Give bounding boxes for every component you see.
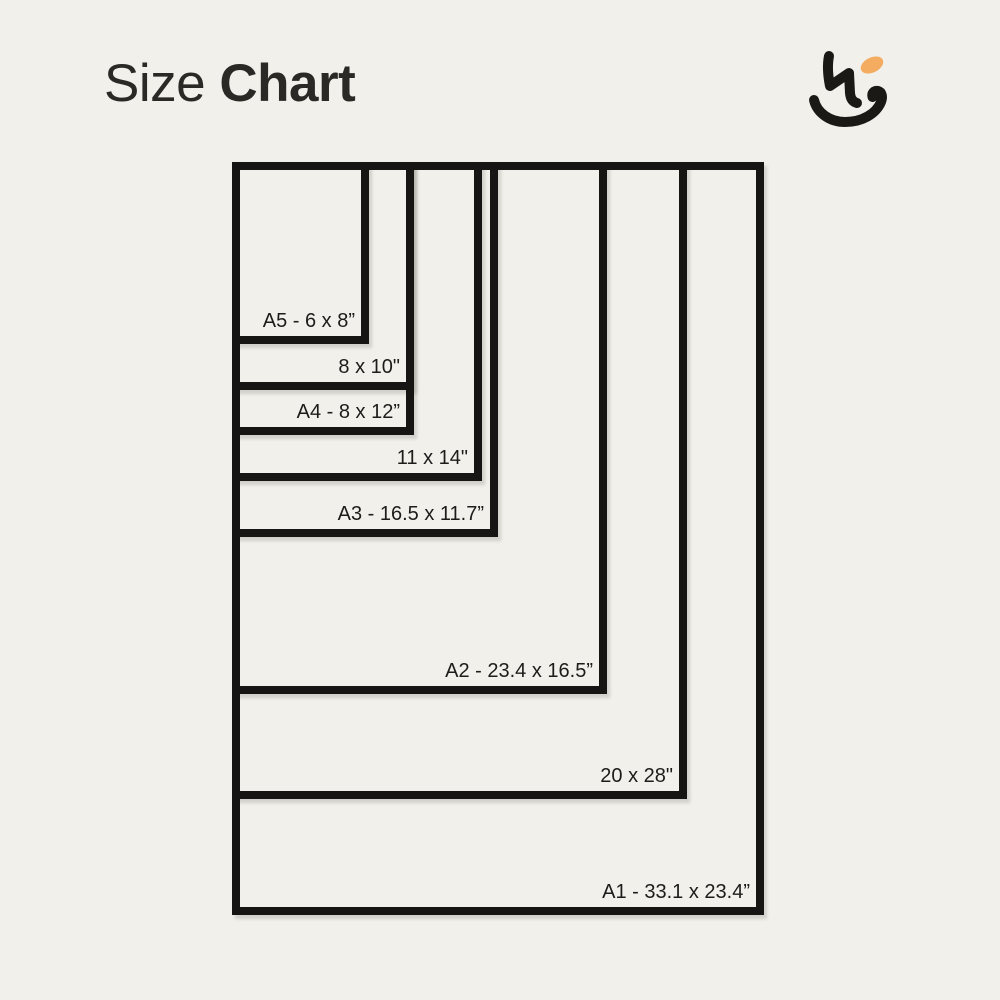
size-diagram: A5 - 6 x 8”8 x 10"A4 - 8 x 12”11 x 14"A3… (0, 0, 1000, 1000)
size-label-A1: A1 - 33.1 x 23.4” (602, 880, 750, 904)
size-rect-A1: A1 - 33.1 x 23.4” (232, 162, 764, 915)
size-chart-page: Size Chart A5 - 6 x 8”8 x 10"A4 - 8 x 12… (0, 0, 1000, 1000)
